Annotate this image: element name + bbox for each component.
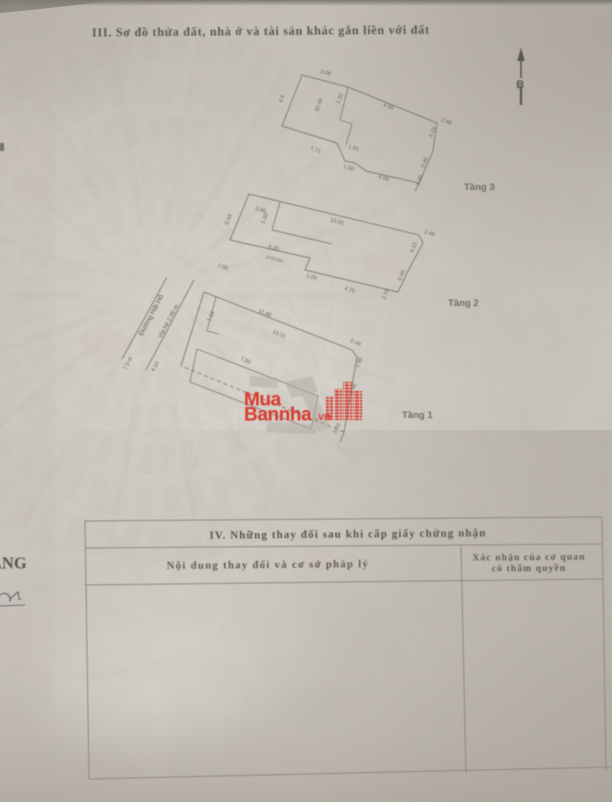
svg-text:Tầng 1: Tầng 1 (402, 410, 433, 421)
svg-text:IV. Những thay đổi sau khi cấp: IV. Những thay đổi sau khi cấp giấy chứn… (209, 527, 486, 541)
svg-text:Tầng 3: Tầng 3 (464, 182, 495, 193)
svg-text:Nội dung thay đổi và cơ sở phá: Nội dung thay đổi và cơ sở pháp lý (167, 559, 370, 572)
svg-text:ẪNG: ẪNG (0, 554, 27, 573)
svg-text:Xác nhận của cơ quan: Xác nhận của cơ quan (472, 552, 585, 564)
svg-text:có thẩm quyền: có thẩm quyền (492, 563, 567, 575)
svg-text:III. Sơ đồ thửa đất, nhà ở và: III. Sơ đồ thửa đất, nhà ở và tài sản kh… (92, 23, 430, 40)
svg-text:Bannha: Bannha (244, 405, 312, 426)
svg-text:Tầng 2: Tầng 2 (448, 298, 479, 309)
svg-text:B: B (516, 79, 524, 91)
